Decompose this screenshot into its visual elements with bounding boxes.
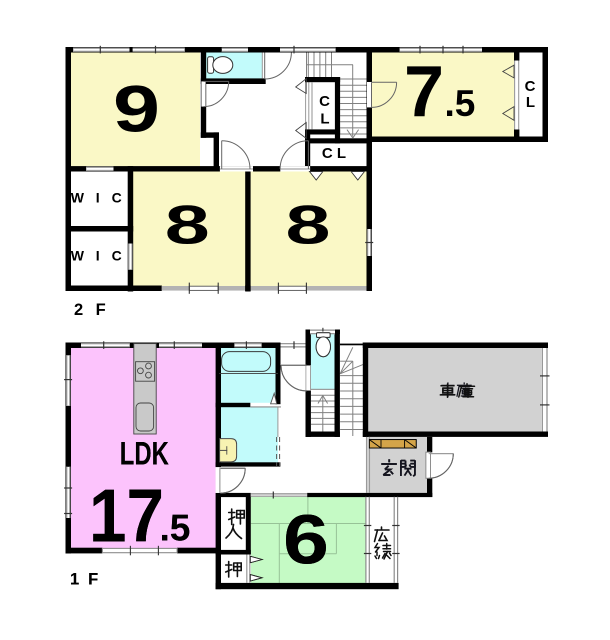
svg-text:C: C	[525, 78, 536, 95]
svg-text:1F: 1F	[70, 571, 107, 589]
svg-text:6: 6	[283, 501, 329, 579]
svg-text:17: 17	[89, 474, 164, 558]
svg-text:2F: 2F	[74, 301, 118, 319]
svg-text:C: C	[319, 93, 330, 110]
svg-text:8: 8	[286, 194, 331, 256]
svg-text:9: 9	[113, 72, 160, 146]
svg-text:W I C: W I C	[71, 190, 126, 206]
svg-text:C L: C L	[322, 145, 346, 162]
svg-text:.5: .5	[160, 508, 191, 549]
svg-text:LDK: LDK	[120, 436, 169, 472]
svg-text:.5: .5	[445, 83, 476, 124]
svg-text:W I C: W I C	[71, 248, 126, 264]
svg-text:7: 7	[404, 52, 444, 132]
svg-text:L: L	[526, 94, 535, 111]
svg-text:L: L	[320, 111, 329, 128]
svg-text:8: 8	[165, 194, 210, 256]
